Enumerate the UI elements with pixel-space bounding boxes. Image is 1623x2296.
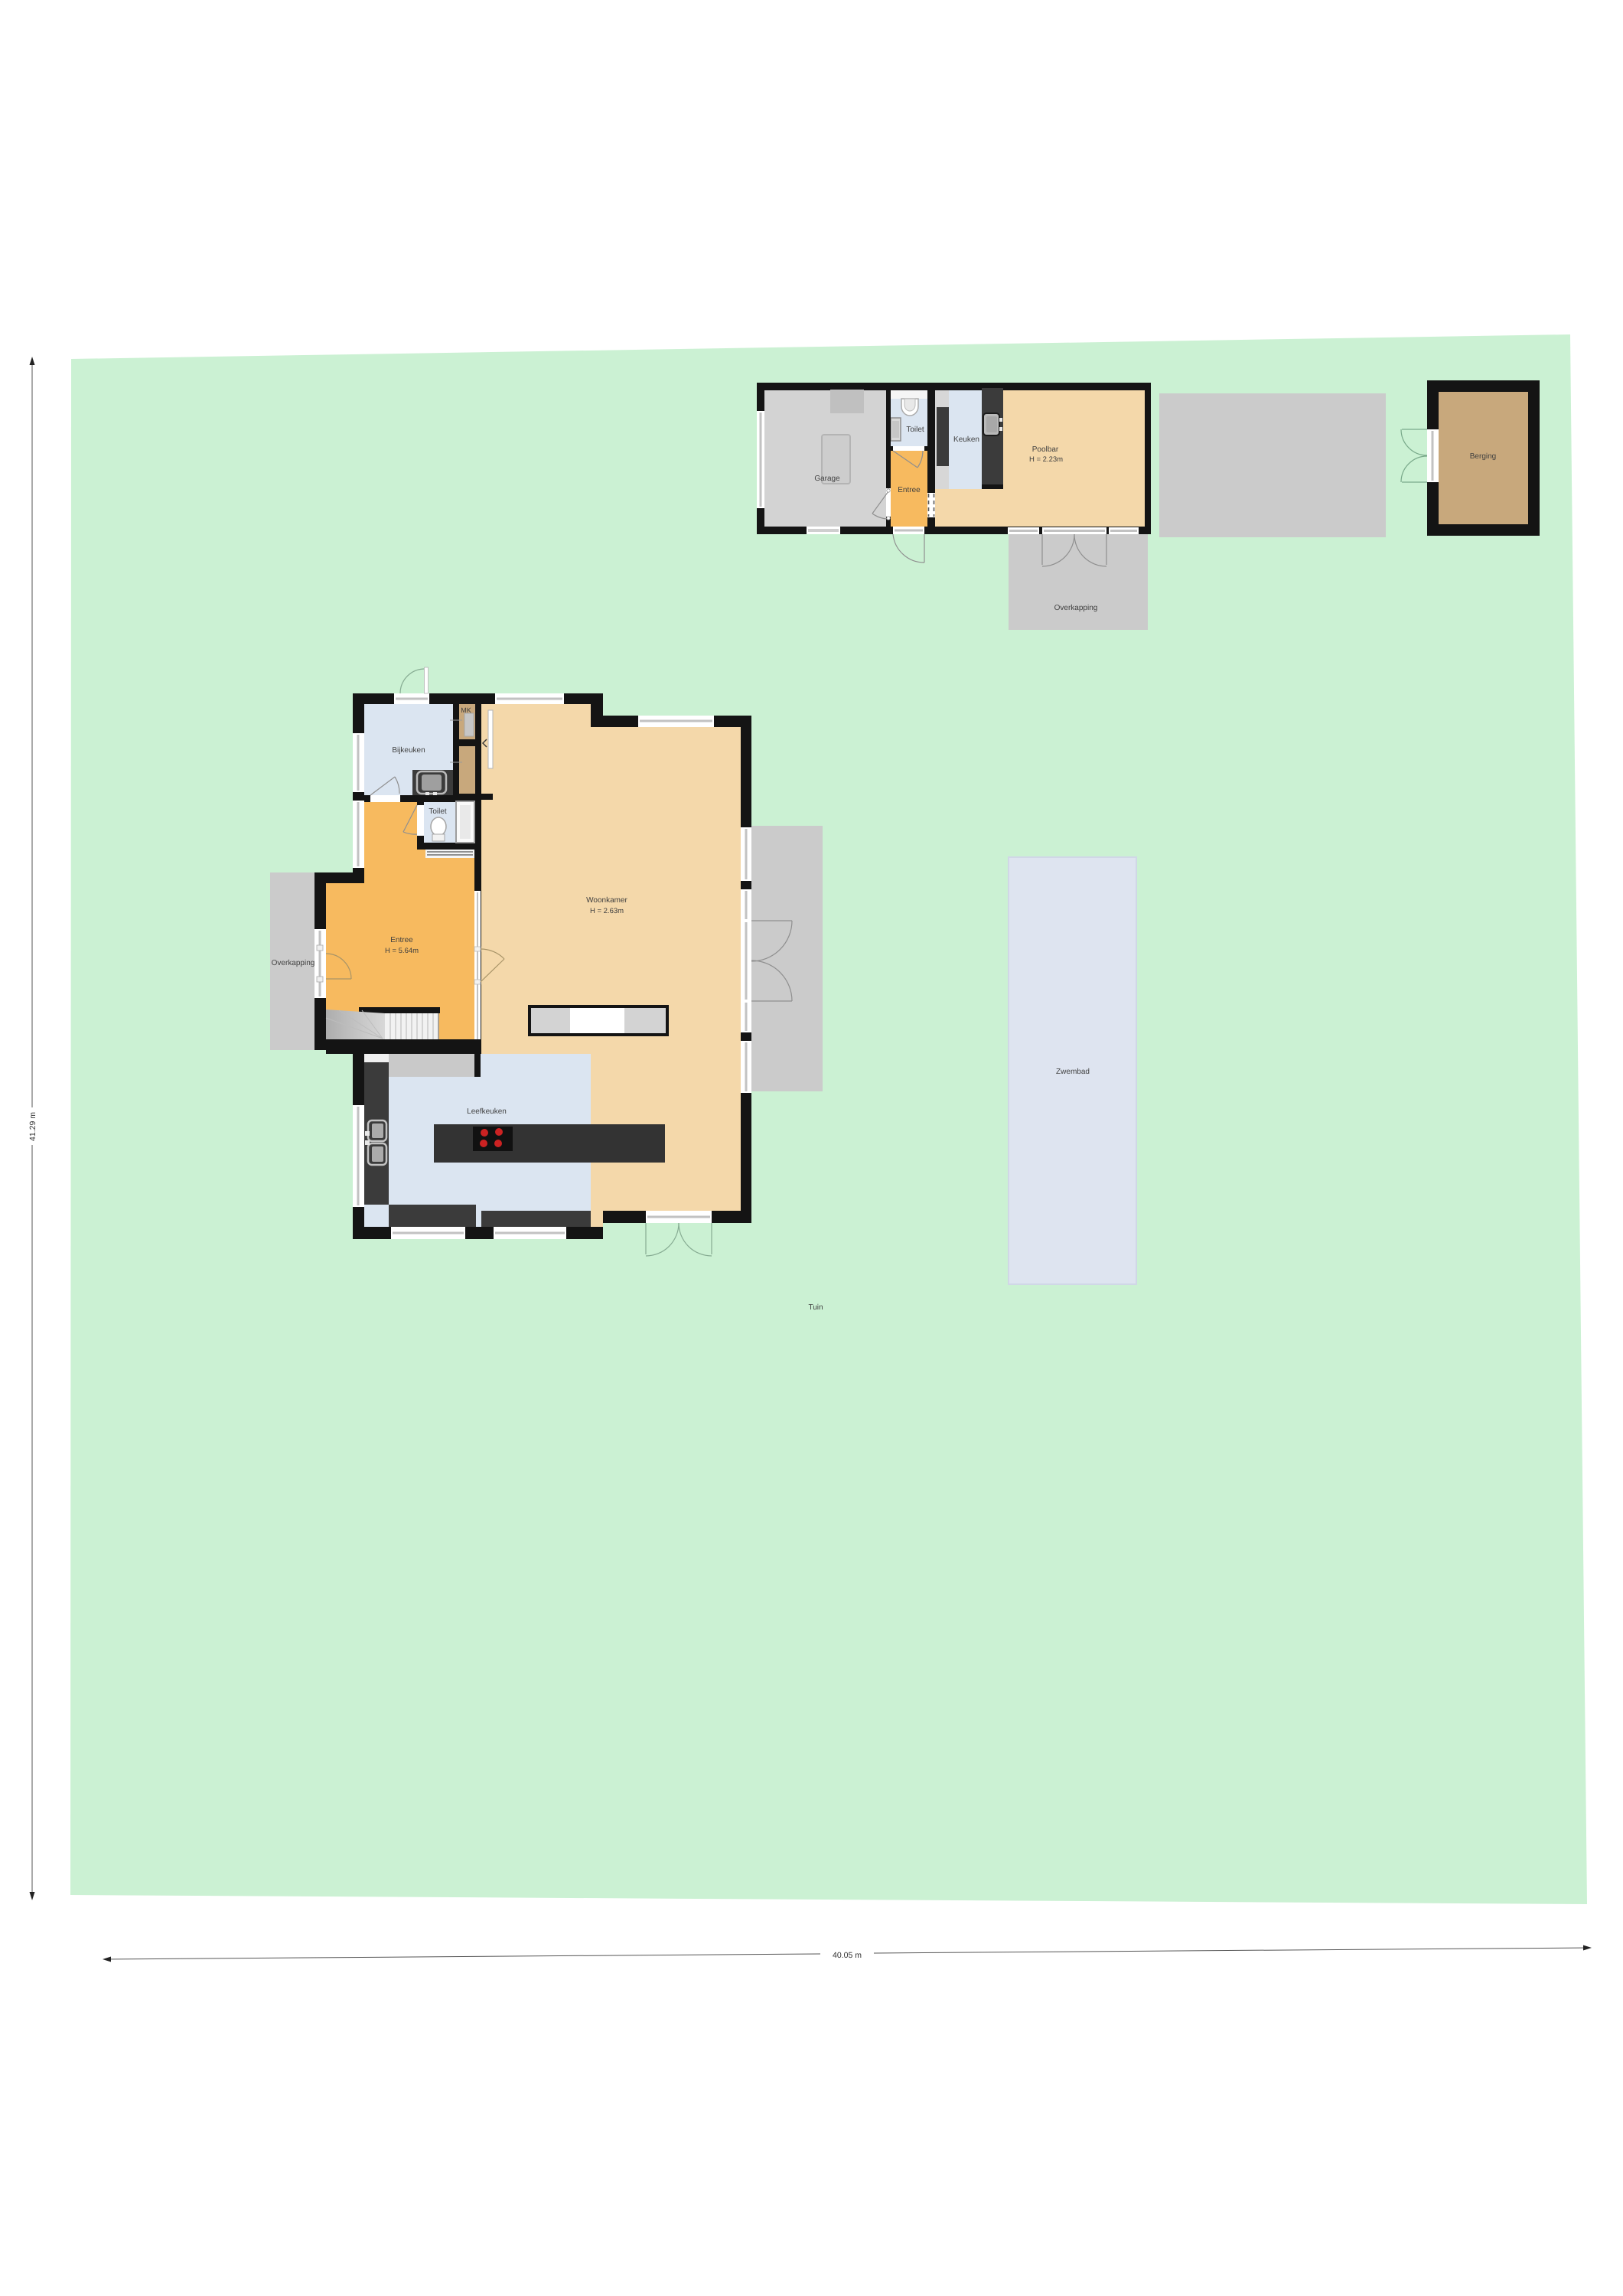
svg-text:Toilet: Toilet <box>429 807 447 816</box>
svg-text:Leefkeuken: Leefkeuken <box>467 1107 507 1116</box>
svg-text:H = 2.23m: H = 2.23m <box>1029 455 1063 464</box>
svg-text:Bijkeuken: Bijkeuken <box>392 746 425 755</box>
svg-text:Entree: Entree <box>390 936 413 944</box>
svg-text:MK: MK <box>461 706 471 714</box>
svg-text:Overkapping: Overkapping <box>272 959 315 967</box>
svg-text:H = 2.63m: H = 2.63m <box>590 907 624 915</box>
svg-text:Overkapping: Overkapping <box>1054 604 1098 612</box>
svg-text:Poolbar: Poolbar <box>1032 445 1059 454</box>
svg-text:Entree: Entree <box>898 486 921 494</box>
svg-text:Tuin: Tuin <box>808 1303 823 1312</box>
svg-text:Garage: Garage <box>814 475 840 483</box>
svg-text:40.05 m: 40.05 m <box>833 1951 862 1960</box>
svg-text:Keuken: Keuken <box>953 435 979 444</box>
svg-text:H = 5.64m: H = 5.64m <box>385 947 419 955</box>
svg-text:41.29 m: 41.29 m <box>28 1112 37 1141</box>
svg-text:Woonkamer: Woonkamer <box>586 896 627 905</box>
svg-text:Toilet: Toilet <box>906 426 924 434</box>
svg-text:Berging: Berging <box>1470 452 1496 461</box>
svg-text:Zwembad: Zwembad <box>1056 1068 1090 1076</box>
